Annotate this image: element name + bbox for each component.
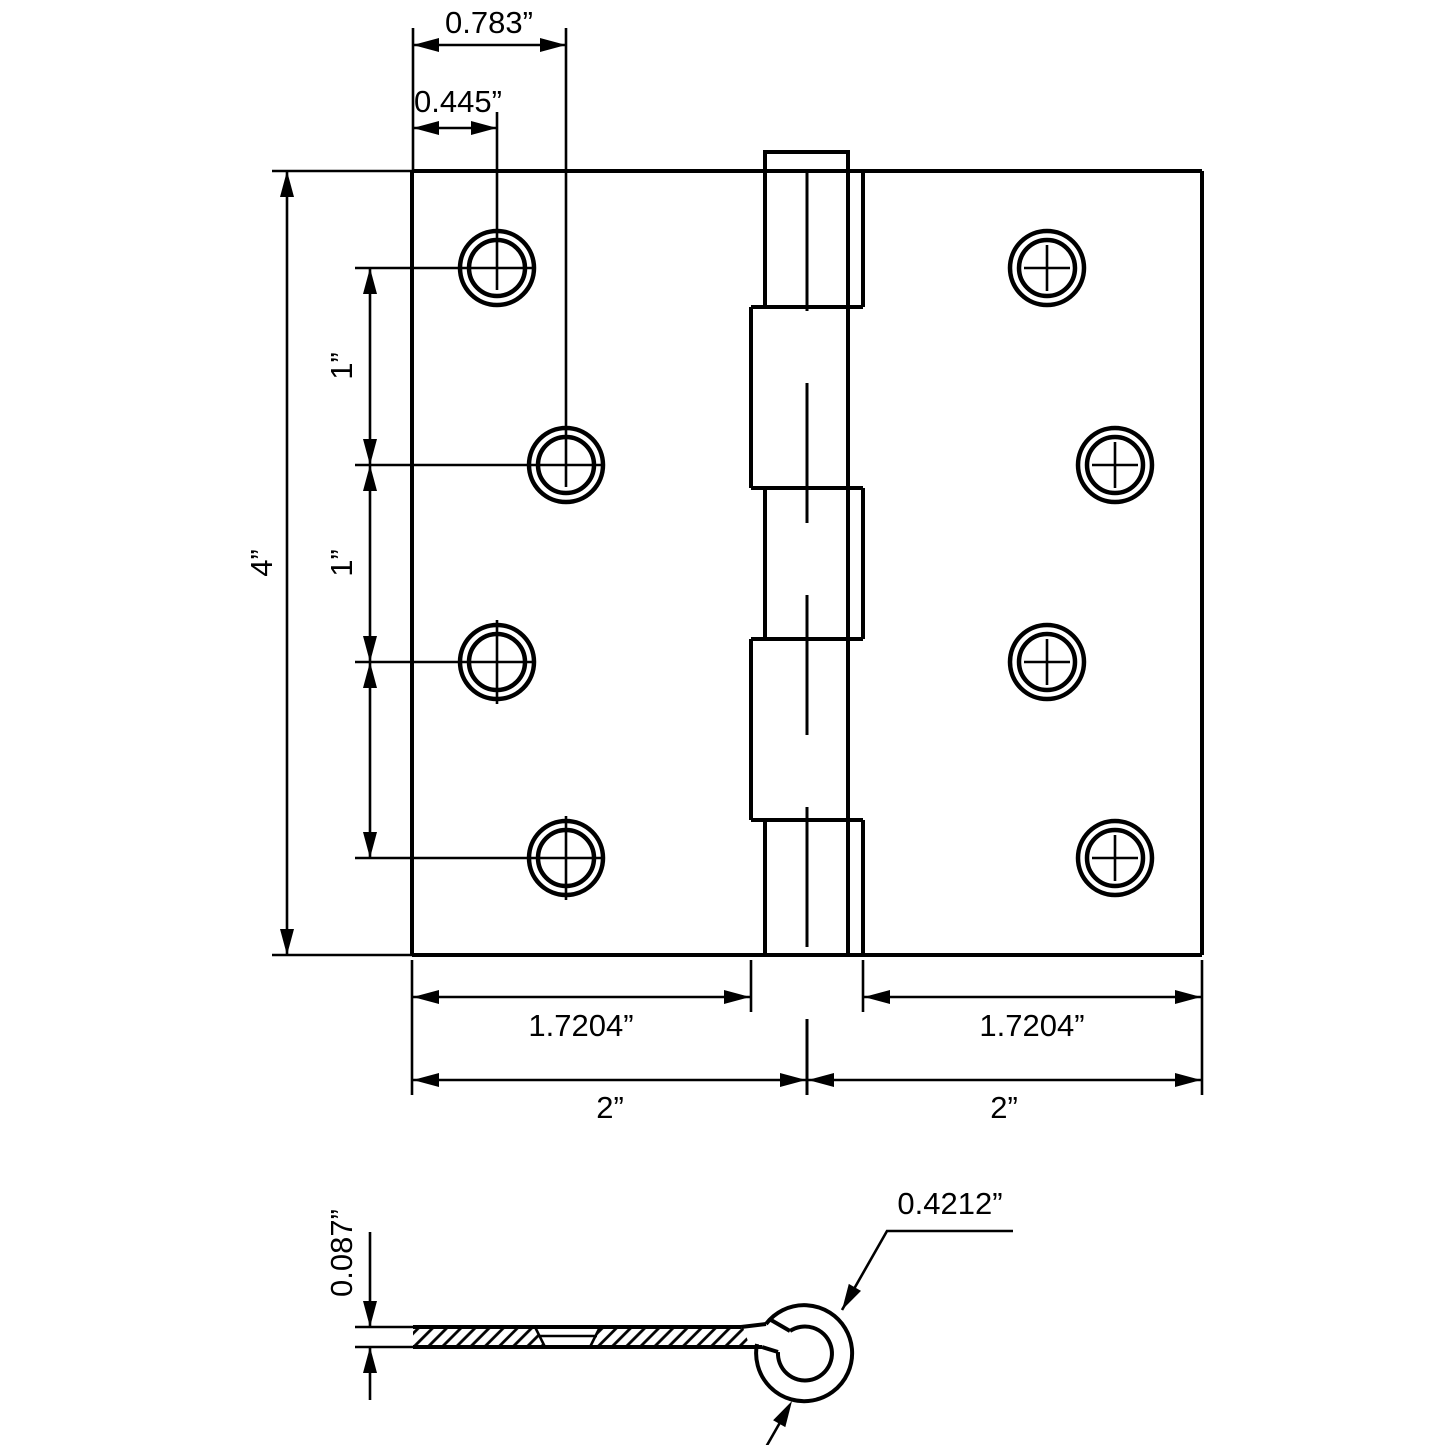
dim-label-spacing2: 1” xyxy=(324,549,359,577)
screw-holes-left xyxy=(355,28,603,900)
drawing-canvas: 0.783” 0.445” 4” 1” 1” xyxy=(0,0,1445,1445)
dim-label-leaf-left: 1.7204” xyxy=(528,1008,633,1043)
arrowhead xyxy=(773,1401,792,1427)
arrowhead xyxy=(808,1073,834,1087)
curl-metal-end xyxy=(771,1320,790,1331)
pin-cap xyxy=(765,152,848,171)
dim-label-knuckle-diameter: 0.4212” xyxy=(897,1186,1002,1221)
curl-top-connector xyxy=(741,1324,766,1327)
arrowhead xyxy=(1175,990,1201,1004)
arrowhead xyxy=(864,990,890,1004)
curl-step xyxy=(762,1347,778,1352)
dim-label-thickness: 0.087” xyxy=(324,1209,359,1297)
dim-knuckle-diameter: 0.4212” xyxy=(842,1186,1013,1310)
dim-leaf-right: 1.7204” xyxy=(864,990,1201,1043)
arrowhead xyxy=(363,465,377,491)
arrowhead xyxy=(540,38,566,52)
screw-hole xyxy=(1078,428,1152,502)
dim-label-spacing1: 1” xyxy=(324,352,359,380)
dim-inner-offset: 0.445” xyxy=(413,84,502,135)
arrowhead xyxy=(280,929,294,955)
arrowhead xyxy=(413,1073,439,1087)
arrowhead xyxy=(363,636,377,662)
arrowhead xyxy=(280,171,294,197)
dim-label-leaf-right: 1.7204” xyxy=(979,1008,1084,1043)
dim-label-half-right: 2” xyxy=(990,1090,1018,1125)
curl-bottom-leader xyxy=(766,1401,792,1445)
dim-label-height: 4” xyxy=(244,549,279,577)
leaf-section xyxy=(413,1327,762,1347)
arrowhead xyxy=(363,832,377,858)
curl-inner-circle xyxy=(778,1326,832,1380)
hinge-technical-drawing: 0.783” 0.445” 4” 1” 1” xyxy=(0,0,1445,1445)
arrowhead xyxy=(780,1073,806,1087)
dim-hole-spacings: 1” 1” xyxy=(324,268,377,858)
screw-hole xyxy=(1010,625,1084,699)
arrowhead xyxy=(413,121,439,135)
arrowhead xyxy=(363,439,377,465)
dim-half-left: 2” xyxy=(413,1073,806,1125)
arrowhead xyxy=(413,38,439,52)
arrowhead xyxy=(413,990,439,1004)
dim-label-top-offset: 0.783” xyxy=(445,5,533,40)
screw-hole xyxy=(1078,821,1152,895)
arrowhead xyxy=(842,1284,861,1310)
dim-label-half-left: 2” xyxy=(596,1090,624,1125)
arrowhead xyxy=(363,1301,377,1327)
front-view: 0.783” 0.445” 4” 1” 1” xyxy=(244,5,1202,1125)
curl-outer-circle xyxy=(756,1305,852,1401)
hatch-block-2 xyxy=(590,1327,750,1347)
screw-hole xyxy=(1010,231,1084,305)
dim-thickness: 0.087” xyxy=(324,1209,413,1400)
dim-label-inner-offset: 0.445” xyxy=(414,84,502,119)
screw-holes-right xyxy=(1010,231,1152,895)
dim-half-right: 2” xyxy=(808,1073,1201,1125)
arrowhead xyxy=(471,121,497,135)
arrowhead xyxy=(363,1347,377,1373)
knuckle-curl xyxy=(741,1305,852,1401)
side-view: 0.087” 0.4212” xyxy=(324,1186,1013,1445)
leader-line xyxy=(842,1231,1013,1310)
arrowhead xyxy=(363,662,377,688)
arrowhead xyxy=(363,268,377,294)
dim-leaf-left: 1.7204” xyxy=(413,990,750,1043)
hatch-block-1 xyxy=(413,1327,545,1347)
arrowhead xyxy=(1175,1073,1201,1087)
arrowhead xyxy=(724,990,750,1004)
